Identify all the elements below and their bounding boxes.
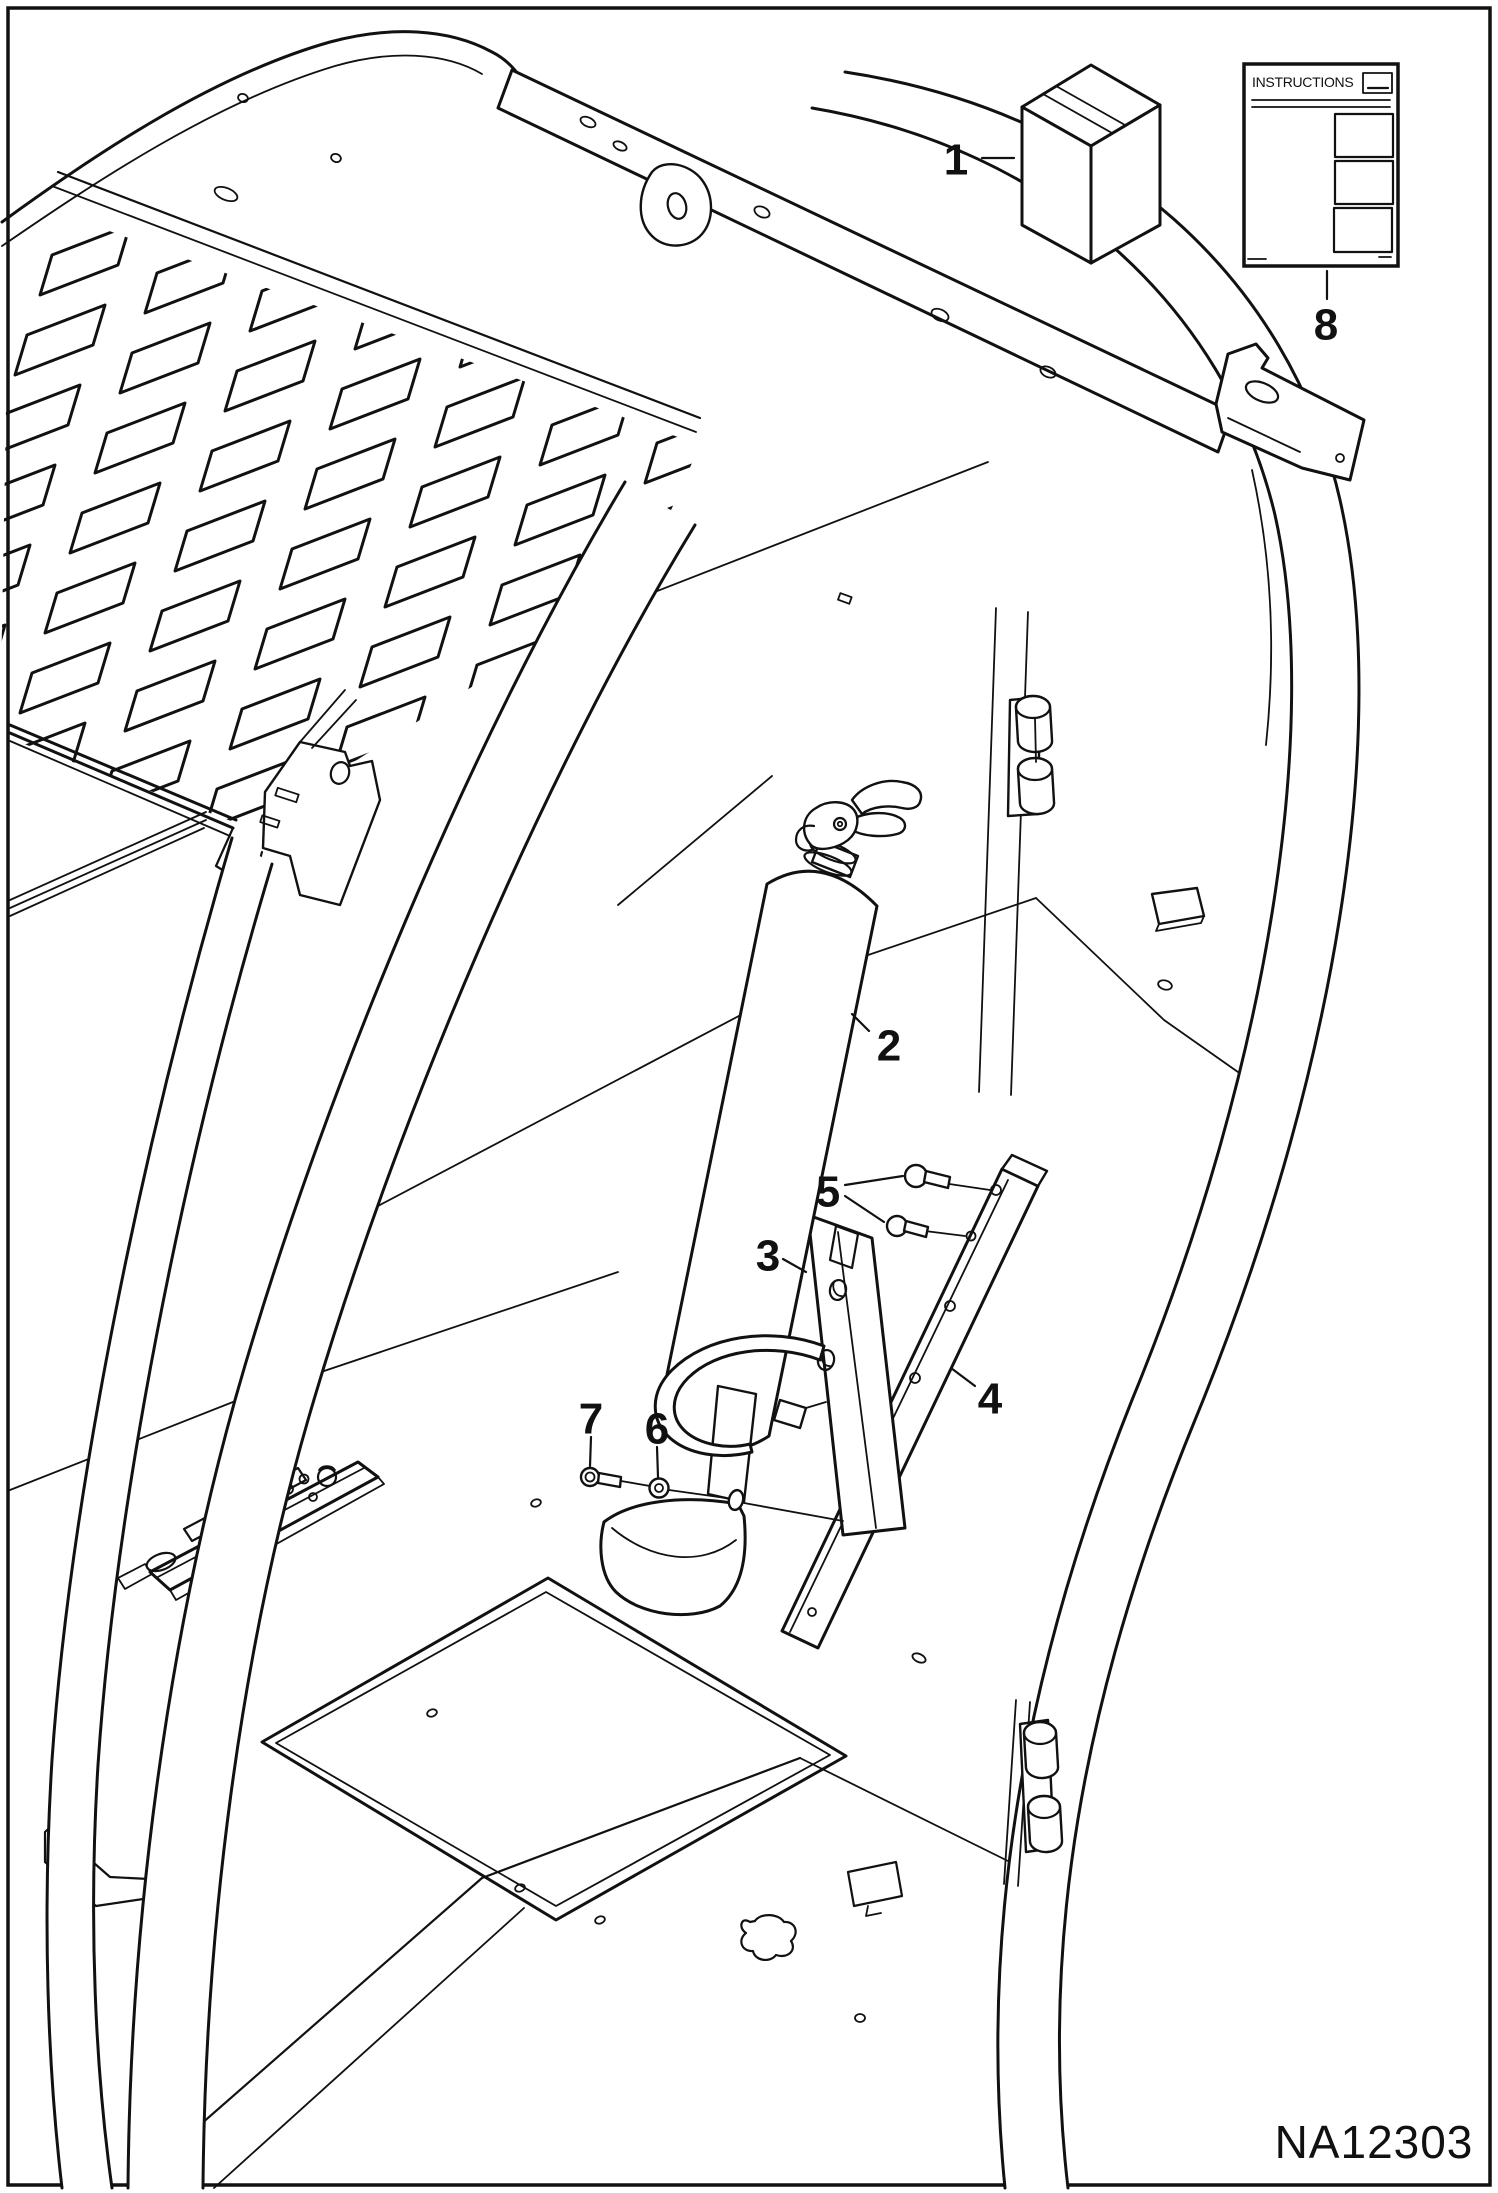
- callout-6: 6: [645, 1405, 669, 1454]
- roof-panel: [2, 32, 518, 246]
- floor-mat: [262, 1578, 846, 1920]
- callout-7: 7: [579, 1395, 603, 1444]
- parts-diagram: INSTRUCTIONS 1 2 3 4 5 6 7 8 NA12303: [0, 0, 1498, 2193]
- drawing-number: NA12303: [1275, 2116, 1474, 2168]
- callout-4: 4: [978, 1375, 1003, 1424]
- callout-3: 3: [756, 1232, 780, 1281]
- instruction-sheet: INSTRUCTIONS: [1244, 64, 1398, 266]
- latch-block: [1152, 888, 1204, 931]
- extinguisher-bracket: [808, 1215, 905, 1535]
- callout-5: 5: [816, 1168, 840, 1217]
- washer: [650, 1479, 669, 1498]
- strap-buckle: [774, 1400, 806, 1428]
- hex-bolt: [581, 1468, 621, 1487]
- instruction-sheet-title: INSTRUCTIONS: [1252, 74, 1353, 90]
- eyelet-lug: [641, 164, 711, 245]
- support-cup: [601, 1500, 745, 1615]
- parts-diagram-page: INSTRUCTIONS 1 2 3 4 5 6 7 8 NA12303: [0, 0, 1498, 2193]
- callout-1: 1: [944, 136, 968, 185]
- parts-box: [1022, 65, 1160, 263]
- rear-left-pillar: [128, 482, 695, 2188]
- callout-2: 2: [877, 1022, 901, 1071]
- upper-hinge: [1008, 696, 1054, 816]
- callout-8: 8: [1314, 301, 1338, 350]
- extinguisher-head: [796, 781, 921, 851]
